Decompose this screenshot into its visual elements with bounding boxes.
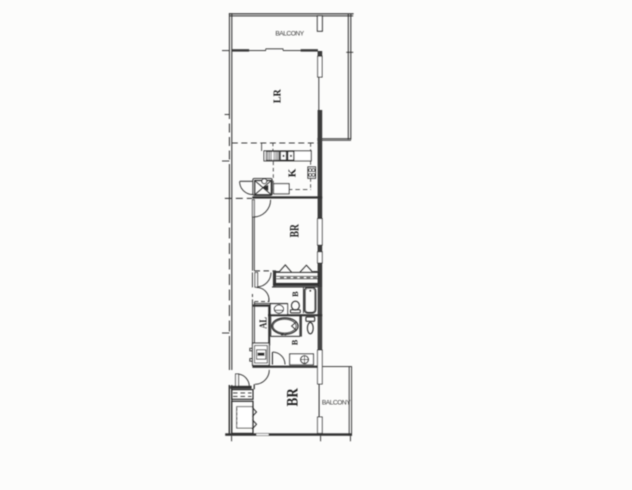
svg-text:B: B (291, 291, 300, 297)
svg-text:B: B (291, 339, 300, 345)
svg-text:BALCONY: BALCONY (322, 400, 351, 407)
svg-text:BR: BR (288, 223, 301, 237)
svg-text:BALCONY: BALCONY (275, 30, 304, 37)
svg-text:LR: LR (273, 88, 284, 103)
svg-text:BR: BR (284, 388, 301, 407)
svg-text:K: K (287, 168, 299, 177)
svg-text:AL: AL (259, 317, 270, 329)
